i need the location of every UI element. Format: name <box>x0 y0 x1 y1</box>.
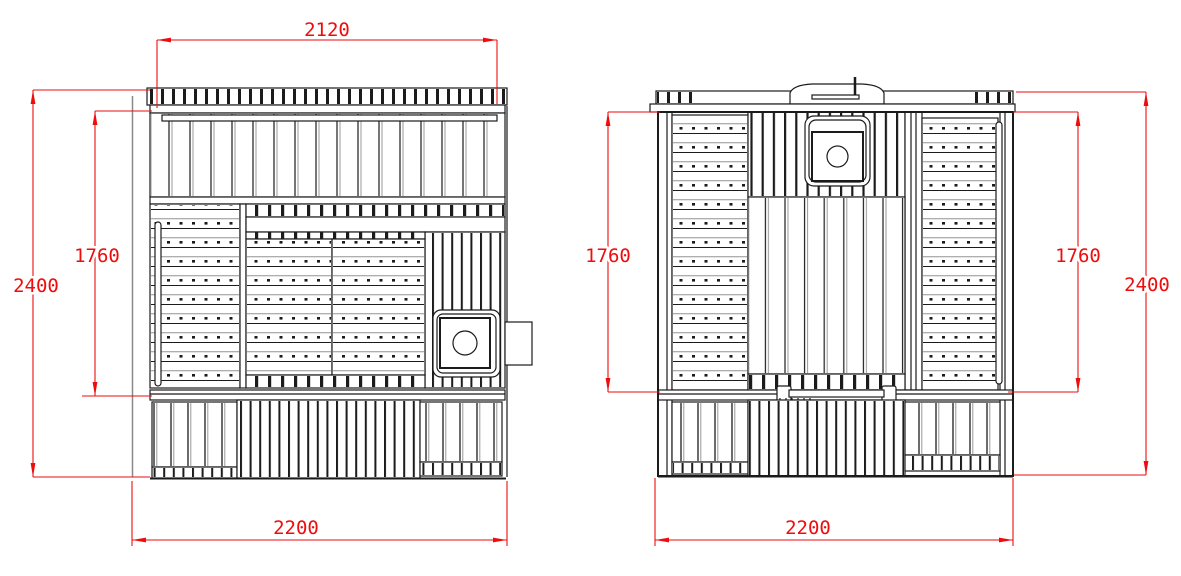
dimension-interior-height-left: 1760 <box>74 111 152 396</box>
mid-divider <box>150 197 505 204</box>
right-elevation-view <box>650 77 1015 477</box>
dimension-base-width-left: 2200 <box>132 481 507 546</box>
corner-post <box>240 204 246 388</box>
sauna-elevation-drawing: 2120 2400 1760 2200 <box>0 0 1181 576</box>
rail-bar <box>789 390 884 397</box>
dim-label-base-width-left: 2200 <box>273 517 319 539</box>
skirt-middle-right-view <box>748 400 905 476</box>
stove <box>433 310 532 377</box>
skirt-middle <box>237 400 420 478</box>
bench-front-right-bay <box>332 239 425 375</box>
bench-backrest-board <box>246 217 505 232</box>
stove-front-door-circle <box>827 146 848 167</box>
dim-label-interior-height-left: 1760 <box>74 245 120 267</box>
bench-bottom-slats <box>246 375 425 388</box>
vertical-rail <box>155 222 161 386</box>
technical-drawing-page: 2120 2400 1760 2200 <box>0 0 1181 576</box>
dimension-interior-height-rv-right: 1760 <box>1008 112 1101 392</box>
right-side-panel-boards <box>922 118 998 390</box>
dimension-overall-height-left: 2400 <box>13 90 150 477</box>
dim-label-base-width-right: 2200 <box>785 517 831 539</box>
dimension-interior-height-rv-left: 1760 <box>585 112 660 392</box>
upper-wall-planks <box>150 113 505 197</box>
roof-boards <box>147 88 507 105</box>
left-side-panel-boards <box>672 115 748 390</box>
roof-edge-band <box>650 104 1015 112</box>
bench-front-left-bay <box>246 239 332 375</box>
left-side-wall-boards <box>150 204 240 388</box>
dim-label-interior-height-rv-right: 1760 <box>1055 245 1101 267</box>
dim-label-overall-height-right: 2400 <box>1124 274 1170 296</box>
stove-front <box>805 116 870 186</box>
dim-label-interior-height-rv-left: 1760 <box>585 245 631 267</box>
top-rail <box>150 105 505 113</box>
floor-band <box>150 390 505 400</box>
skirt-left-bay <box>152 402 237 478</box>
bench-front-boards <box>748 197 905 374</box>
inner-rail <box>162 115 497 121</box>
left-corner-trim <box>658 112 672 476</box>
dimension-overall-height-right: 2400 <box>1014 92 1170 475</box>
center-right-strip <box>905 112 922 390</box>
right-batten <box>996 122 1002 384</box>
stove-feed-tunnel <box>505 322 532 365</box>
dim-label-top-width: 2120 <box>304 19 350 41</box>
skirt-right-bay-right-view <box>905 402 1000 471</box>
left-elevation-view <box>133 88 533 479</box>
upper-slat-band <box>246 204 505 217</box>
lower-slat-band <box>246 232 425 239</box>
dimension-base-width-right: 2200 <box>655 478 1013 546</box>
chimney-cover <box>790 84 884 104</box>
stove-door-circle <box>453 331 477 355</box>
skirt-right-bay <box>420 402 502 476</box>
chimney-plate <box>812 95 859 99</box>
dim-label-overall-height-left: 2400 <box>13 275 59 297</box>
skirt-left-bay-right-view <box>672 402 748 474</box>
